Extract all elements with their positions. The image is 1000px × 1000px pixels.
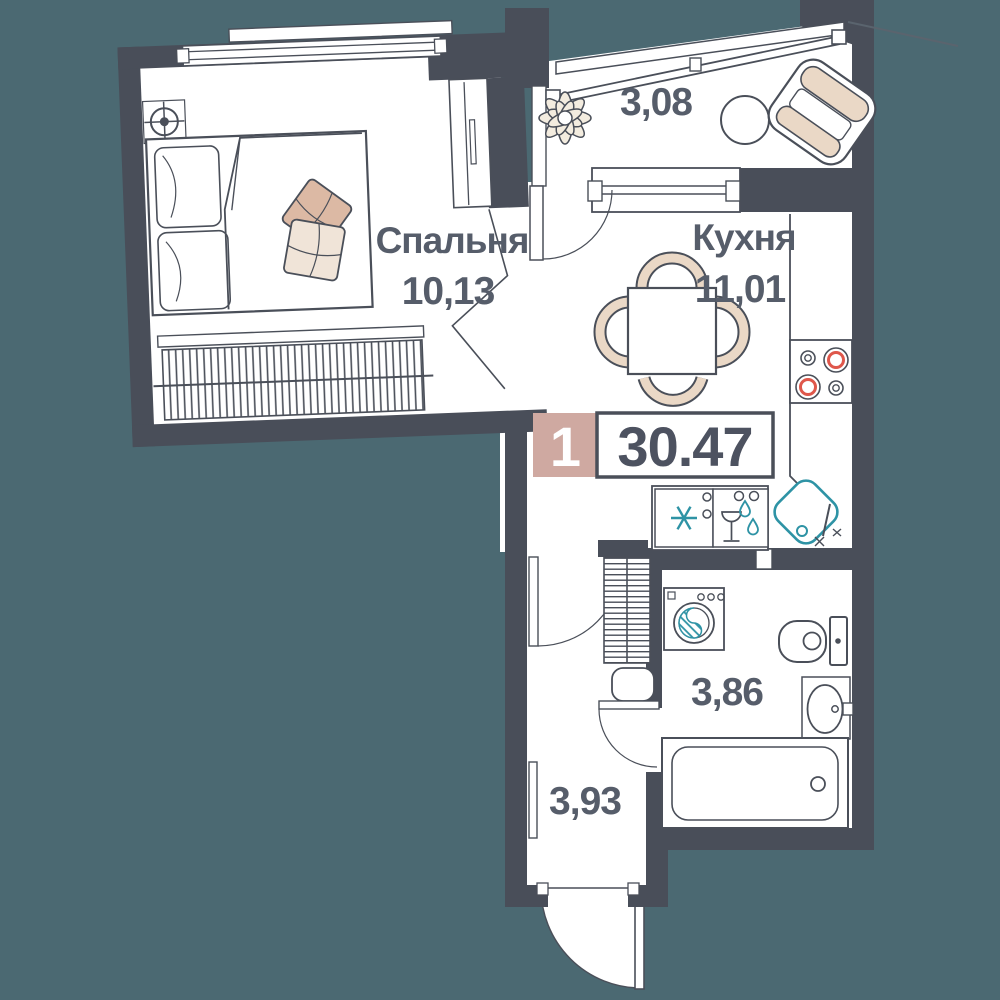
- kitchen-area: 11,01: [695, 268, 786, 311]
- badge-rooms-count: 1: [550, 415, 580, 478]
- balcony-area: 3,08: [620, 81, 692, 124]
- bathroom-area: 3,86: [691, 671, 763, 714]
- cooktop-icon: [790, 340, 852, 403]
- balcony-side-wall: [532, 86, 546, 186]
- badge-total-area: 30.47: [617, 415, 752, 478]
- dishwasher-icon: [713, 489, 768, 547]
- balcony-door-leaf: [530, 186, 543, 260]
- floor-plan-canvas: Спальня 10,13 Кухня 11,01 3,08 3,86 3,93…: [0, 0, 1000, 1000]
- pouf-icon: [612, 668, 654, 701]
- bedroom-label: Спальня: [376, 220, 529, 261]
- kitchen-label: Кухня: [692, 217, 795, 258]
- wall-jamb: [628, 883, 639, 895]
- plant-icon: [539, 92, 591, 144]
- wall-jamb: [537, 883, 548, 895]
- floor-plan: Спальня 10,13 Кухня 11,01 3,08 3,86 3,93…: [0, 0, 1000, 1000]
- hall-door-leaf: [529, 557, 538, 646]
- area-badge: 1 30.47: [533, 413, 773, 478]
- bedroom-area: 10,13: [402, 270, 495, 313]
- hallway-area: 3,93: [549, 780, 621, 823]
- ceiling-light-icon: [143, 100, 187, 144]
- bathtub-icon: [662, 738, 848, 828]
- fridge-icon: [655, 489, 713, 547]
- wardrobe-icon: [449, 78, 492, 207]
- bed-icon: [146, 131, 373, 315]
- cushion-icon: [283, 219, 345, 281]
- pillow-icon: [158, 230, 231, 311]
- bathroom-door-leaf: [599, 701, 659, 709]
- washing-machine-icon: [664, 588, 724, 650]
- mirror-icon: [529, 762, 537, 838]
- toilet-icon: [779, 617, 847, 665]
- washbasin-icon: [802, 677, 853, 739]
- round-table-icon: [721, 96, 769, 144]
- wall-jamb: [756, 549, 772, 569]
- shelving-icon: [604, 557, 650, 663]
